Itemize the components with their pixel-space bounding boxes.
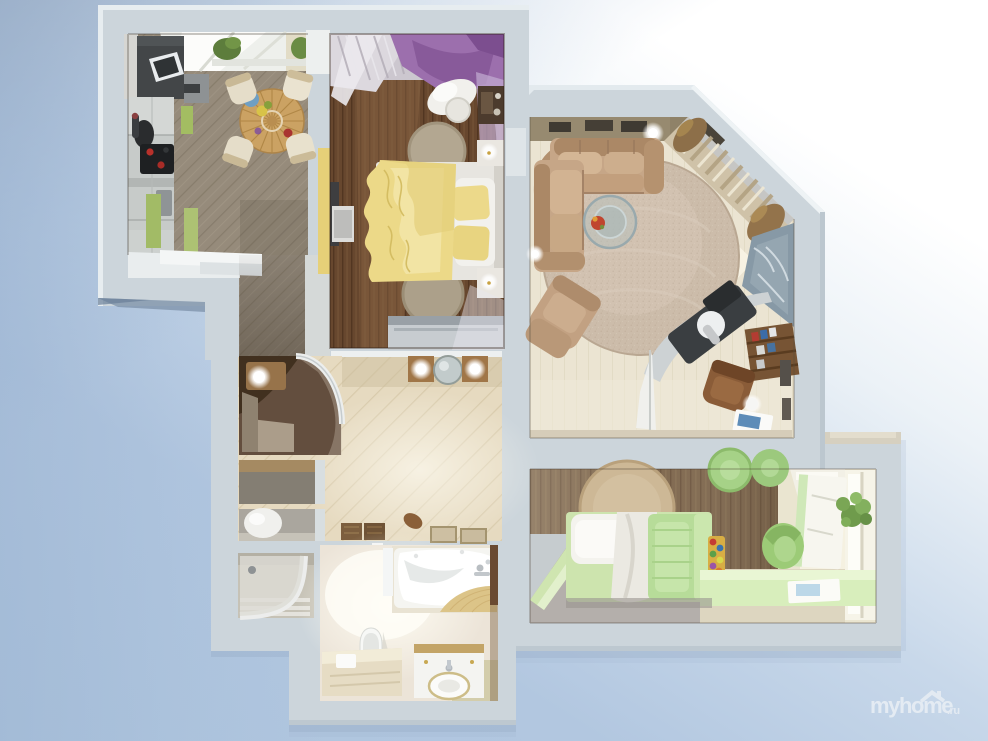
svg-text:.ru: .ru [947, 705, 960, 717]
